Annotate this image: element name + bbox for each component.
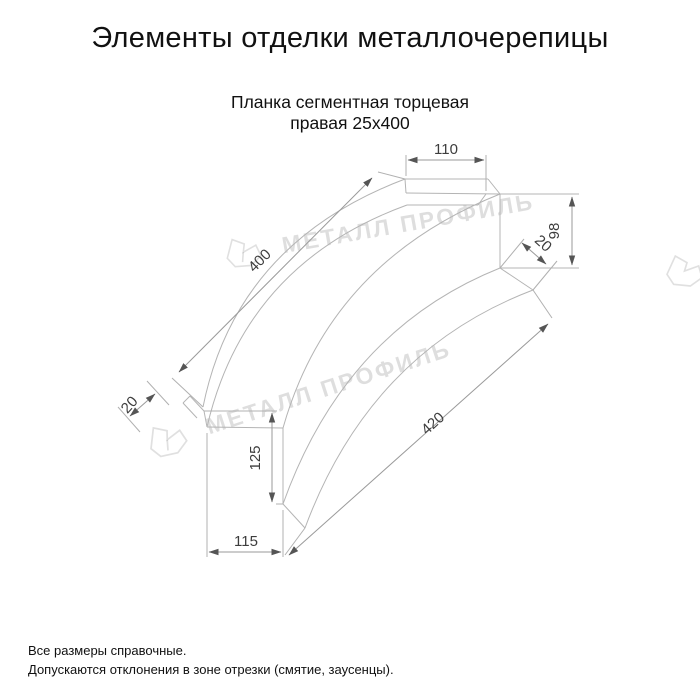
dim-20-left-label: 20 <box>118 393 142 417</box>
dimension-400: 400 <box>172 172 405 407</box>
dim-400-label: 400 <box>245 246 275 276</box>
dim-110-label: 110 <box>434 141 458 158</box>
dim-420-label: 420 <box>418 409 448 438</box>
dim-125-label: 125 <box>247 445 264 470</box>
footer-notes: Все размеры справочные. Допускаются откл… <box>28 642 394 679</box>
dim-115-label: 115 <box>234 533 258 550</box>
dimension-98: 98 <box>546 197 572 265</box>
page: { "title": "Элементы отделки металлочере… <box>0 0 700 700</box>
footer-note-2: Допускаются отклонения в зоне отрезки (с… <box>28 661 394 680</box>
strip-outline <box>183 179 579 528</box>
dimension-20-right: 20 <box>500 232 557 290</box>
dimension-110: 110 <box>406 141 486 191</box>
dimension-125: 125 <box>204 411 283 504</box>
dimension-20-left: 20 <box>118 381 169 432</box>
technical-drawing: 110 98 20 400 420 20 125 <box>0 0 700 700</box>
footer-note-1: Все размеры справочные. <box>28 642 394 661</box>
dimension-420: 420 <box>285 290 552 555</box>
